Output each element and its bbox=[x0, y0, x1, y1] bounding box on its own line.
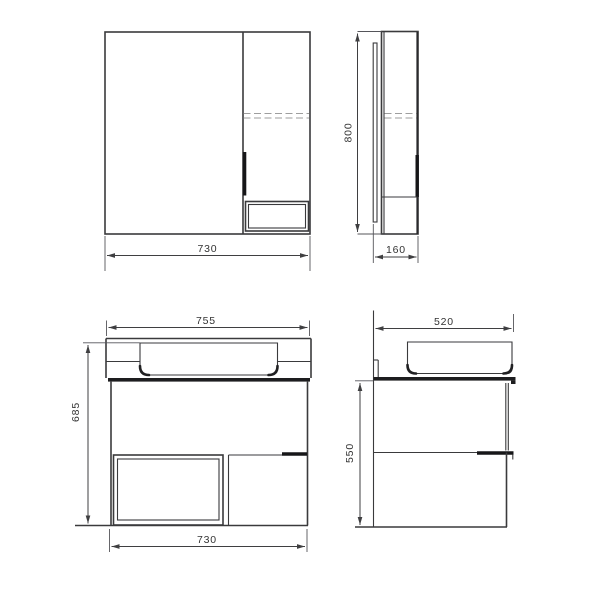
open-shelf-inner bbox=[249, 205, 306, 229]
mirror-cabinet-side-view: 800 160 bbox=[343, 32, 419, 264]
dim-label-vanity-side-height: 550 bbox=[344, 443, 356, 463]
mirror-cabinet-outline bbox=[105, 32, 310, 234]
countertop-front-band bbox=[108, 378, 310, 382]
dim-label-vanity-depth: 520 bbox=[434, 316, 454, 328]
washbasin-front bbox=[140, 343, 278, 375]
countertop-side-band bbox=[374, 377, 516, 381]
countertop-front-lip bbox=[511, 381, 516, 384]
open-niche-inner bbox=[118, 459, 220, 520]
mirror-panel bbox=[373, 43, 377, 222]
open-shelf-outer bbox=[246, 202, 309, 232]
mirror-cabinet-front-view: 730 bbox=[105, 32, 310, 271]
cabinet-body-outline bbox=[382, 32, 419, 235]
basin-corner-arc bbox=[269, 366, 278, 375]
basin-corner-arc bbox=[408, 365, 417, 374]
dim-label-vanity-height: 685 bbox=[70, 402, 82, 422]
basin-corner-arc bbox=[140, 366, 149, 375]
basin-corner-arc bbox=[504, 365, 513, 374]
dim-label-vanity-bottom-width: 730 bbox=[197, 534, 217, 546]
furniture-dimension-drawing: 730 800 160 755 bbox=[0, 0, 600, 600]
washbasin-side bbox=[408, 342, 513, 374]
open-niche-outer bbox=[114, 455, 224, 525]
dim-label-mirror-height: 800 bbox=[343, 123, 355, 143]
technical-drawing-canvas: 730 800 160 755 bbox=[0, 0, 600, 600]
dim-label-mirror-depth: 160 bbox=[386, 244, 406, 256]
dim-label-mirror-width: 730 bbox=[198, 243, 218, 255]
dim-label-vanity-top-width: 755 bbox=[196, 315, 216, 327]
vanity-front-view: 755 685 730 bbox=[70, 315, 311, 552]
vanity-side-view: 520 550 bbox=[344, 311, 516, 528]
